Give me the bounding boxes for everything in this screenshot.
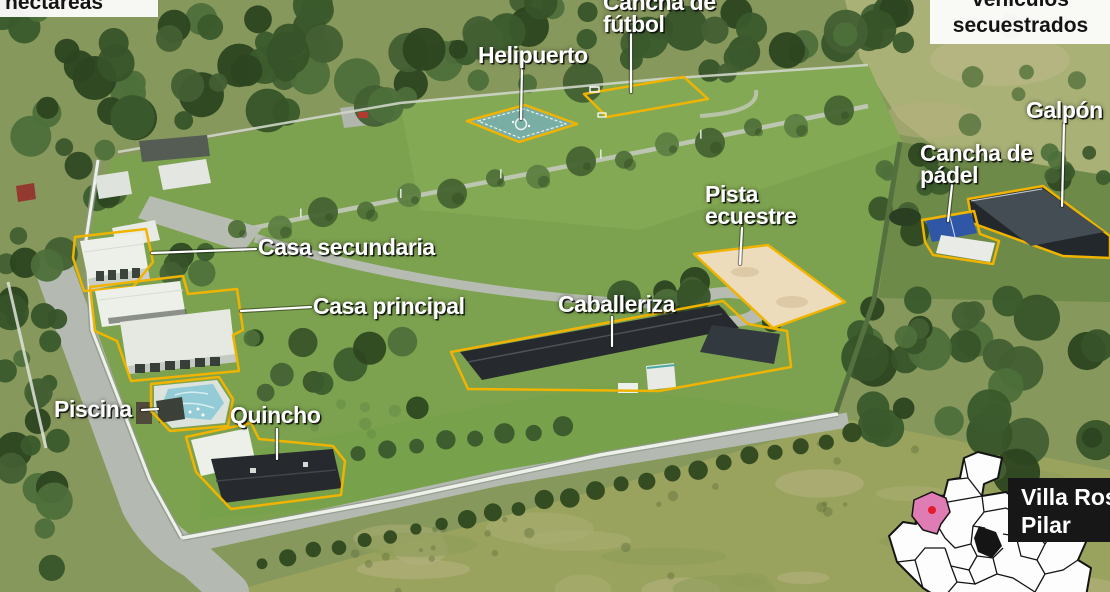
stat-hectareas: hectáreas xyxy=(0,0,158,17)
news-aerial-infographic: Helipuerto Cancha de fútbol Galpón Canch… xyxy=(0,0,1110,592)
label-piscina: Piscina xyxy=(54,398,132,420)
label-helipuerto: Helipuerto xyxy=(478,44,588,66)
pool xyxy=(136,377,233,431)
stat-vehiculos: vehículos secuestrados xyxy=(930,0,1110,44)
map-location-label: Villa Rosa Pilar xyxy=(1008,478,1110,542)
label-quincho: Quincho xyxy=(230,404,320,426)
label-cancha-futbol: Cancha de fútbol xyxy=(603,0,716,35)
label-casa-principal: Casa principal xyxy=(313,295,465,317)
aerial-photo xyxy=(0,0,1110,592)
label-caballeriza: Caballeriza xyxy=(558,293,675,315)
label-casa-secundaria: Casa secundaria xyxy=(258,236,435,258)
label-galpon: Galpón xyxy=(1026,99,1103,121)
label-pista-ecuestre: Pista ecuestre xyxy=(705,183,796,227)
map-location-marker xyxy=(928,506,936,514)
label-cancha-padel: Cancha de pádel xyxy=(920,142,1033,186)
